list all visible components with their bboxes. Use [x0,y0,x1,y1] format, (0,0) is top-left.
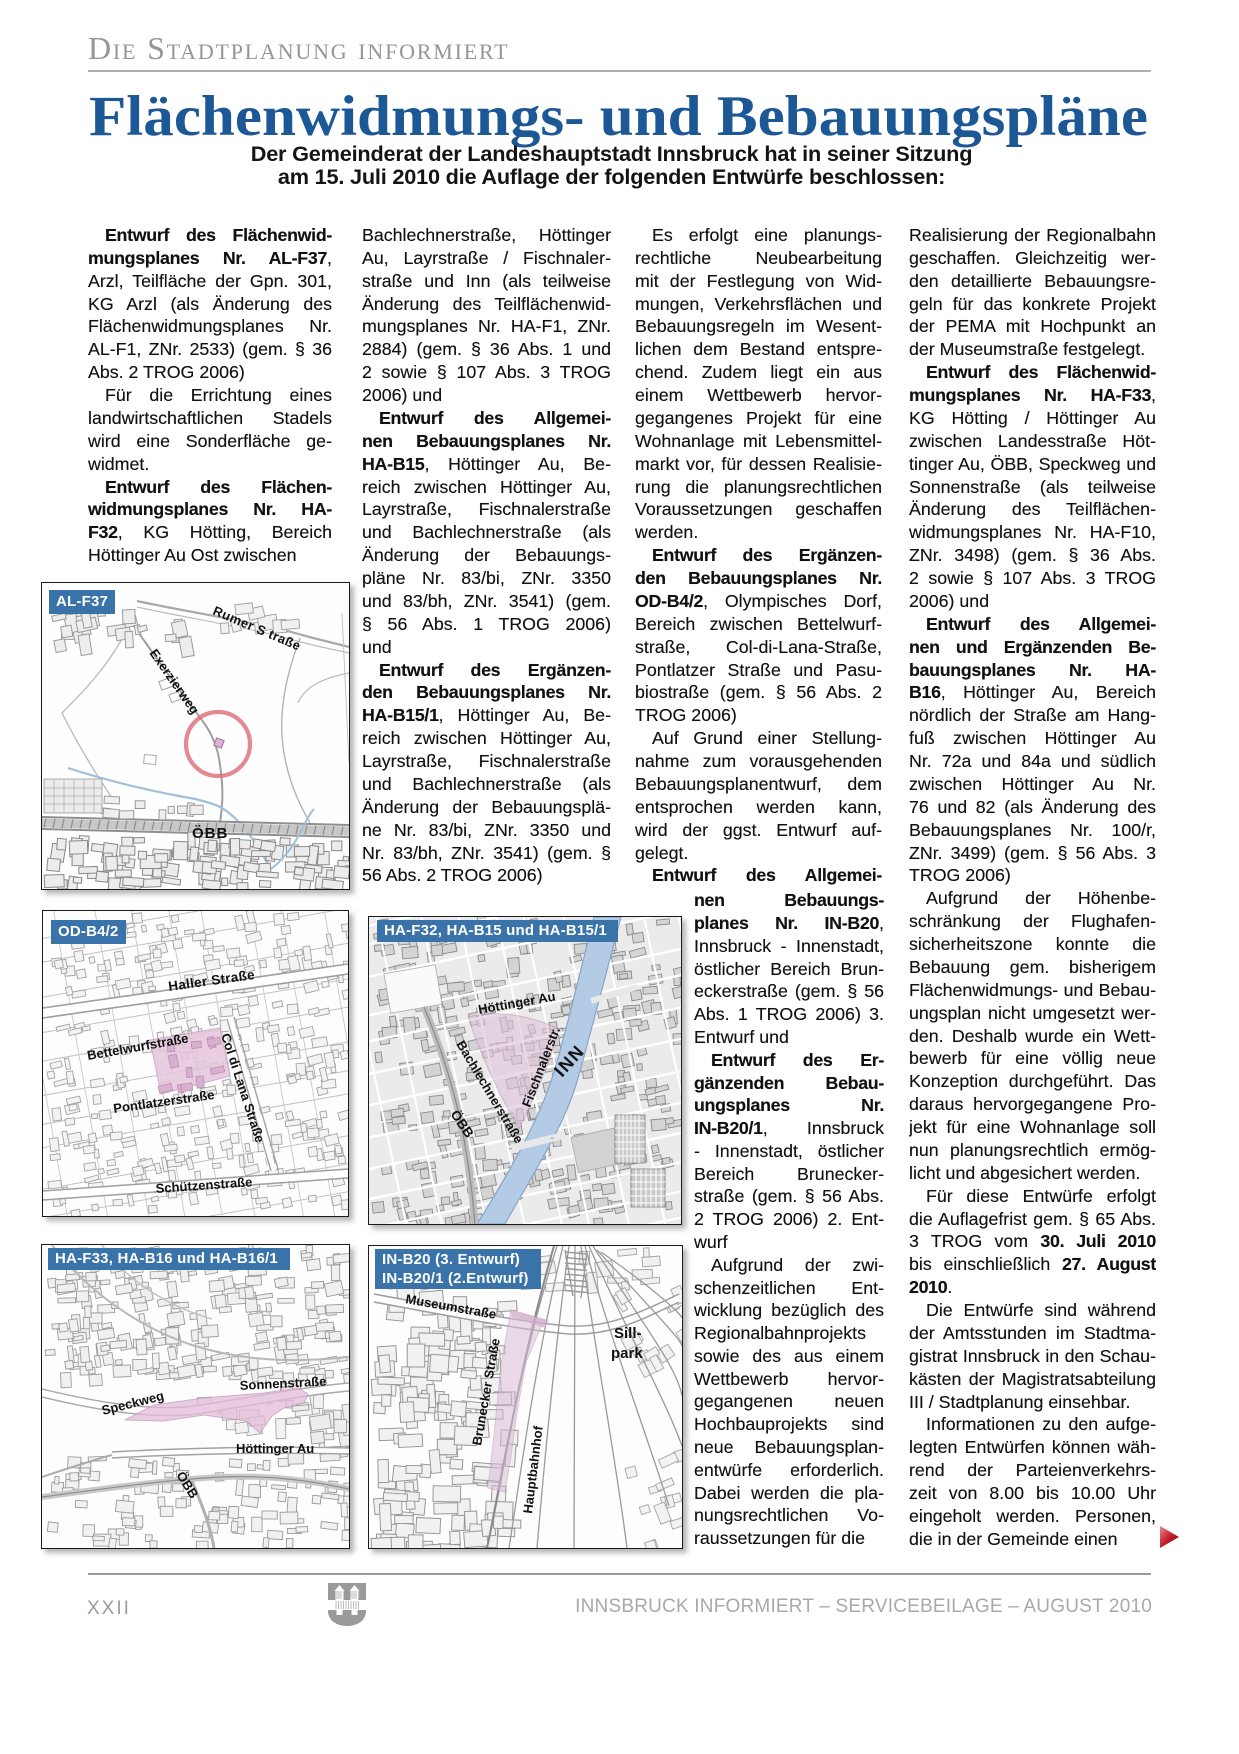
svg-text:ÖBB: ÖBB [192,825,228,842]
svg-text:Flächenwidmungs- und Bebauungs: Flächenwidmungs- und Bebauungspläne [89,88,1148,148]
svg-text:park: park [611,1345,643,1362]
svg-text:Sill-: Sill- [614,1325,642,1342]
svg-text:Höttinger Au: Höttinger Au [236,1441,314,1456]
